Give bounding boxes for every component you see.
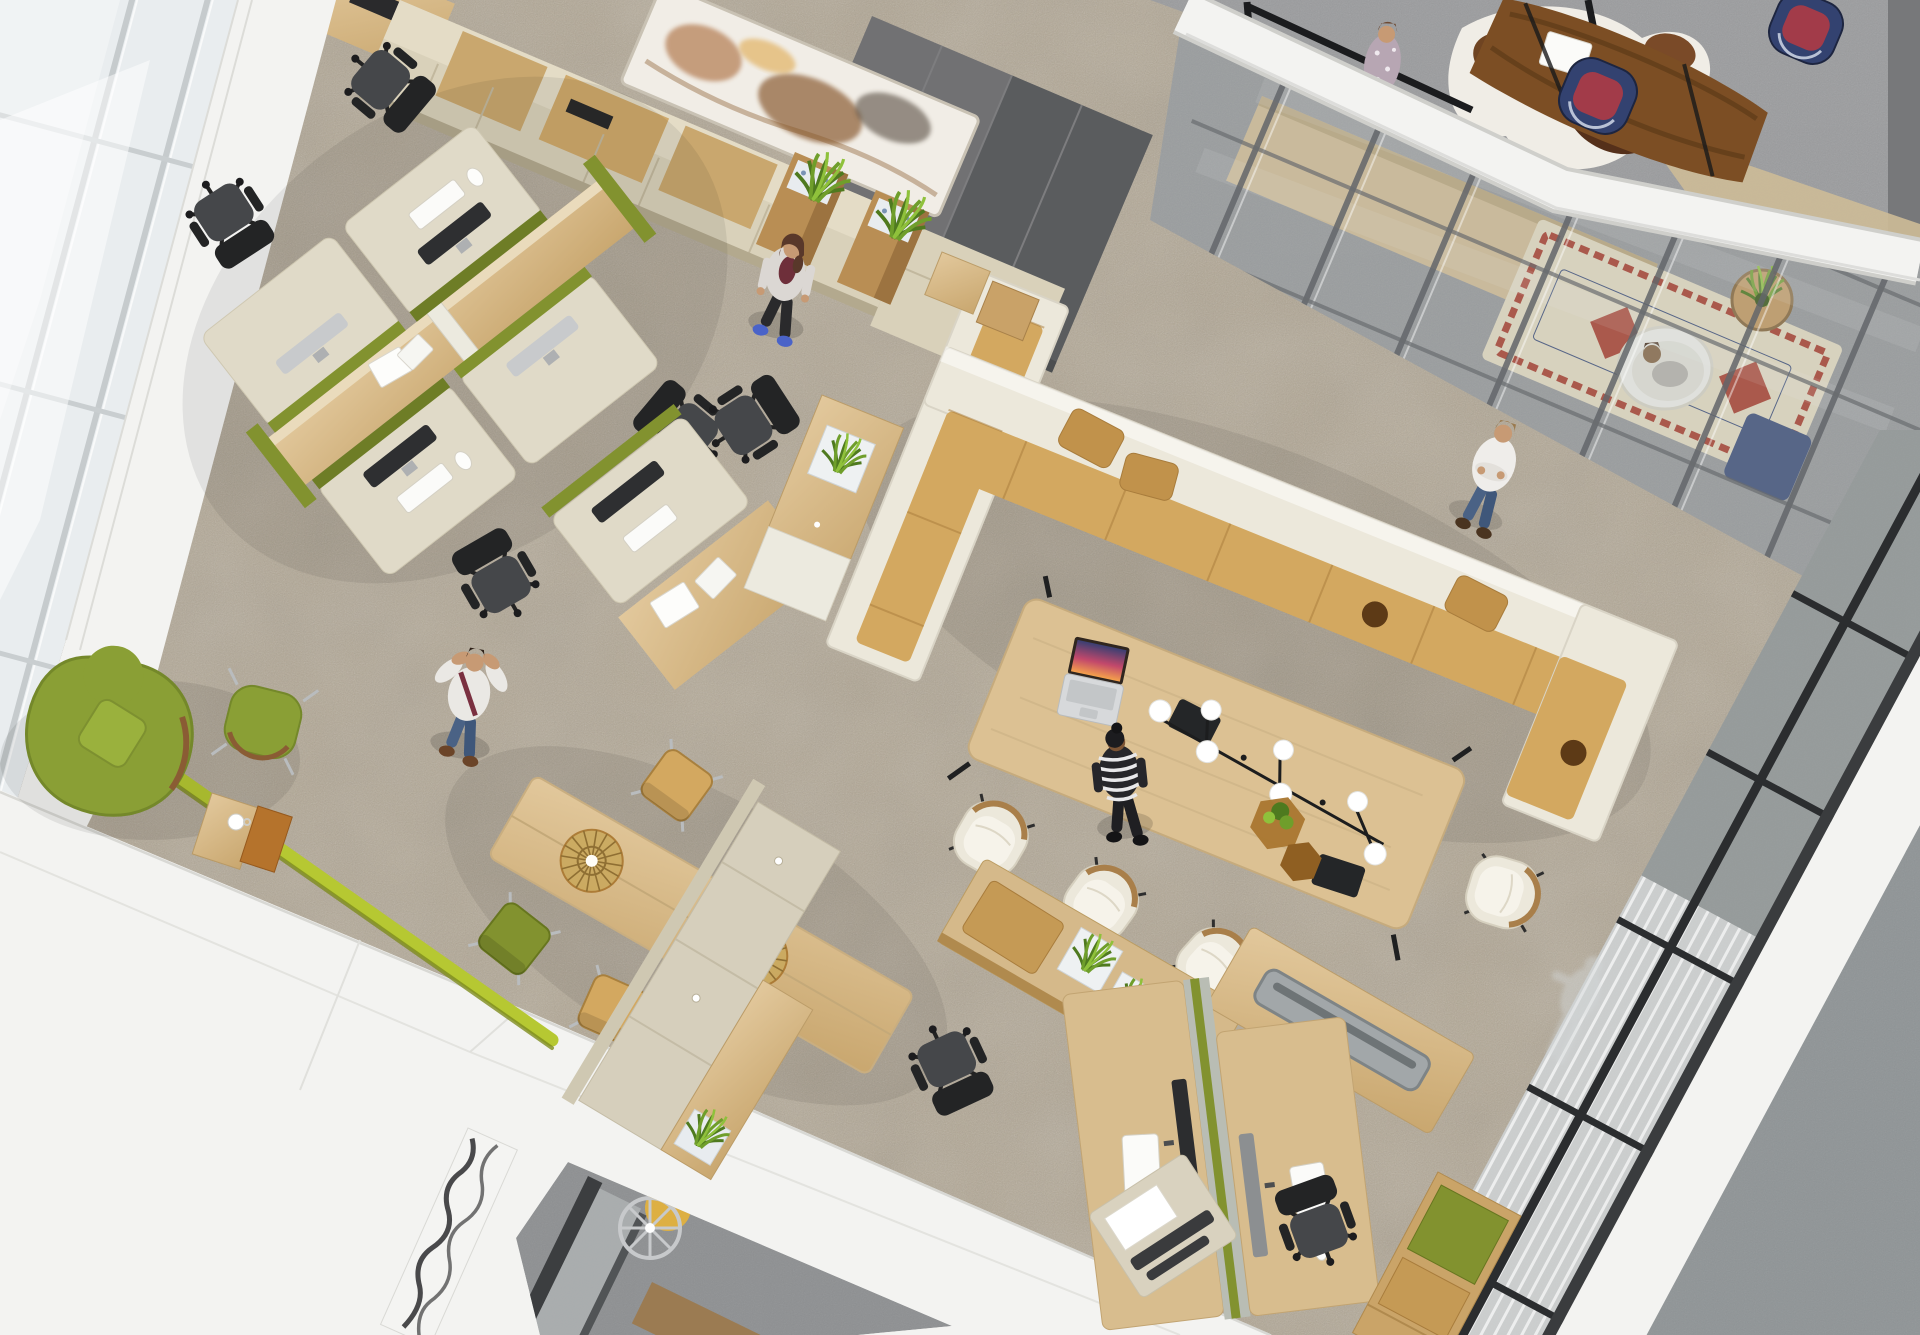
scene-canvas: Aerial 3D render of an open-plan office … xyxy=(0,0,1920,1335)
office-render: Aerial 3D render of an open-plan office … xyxy=(0,0,1920,1335)
